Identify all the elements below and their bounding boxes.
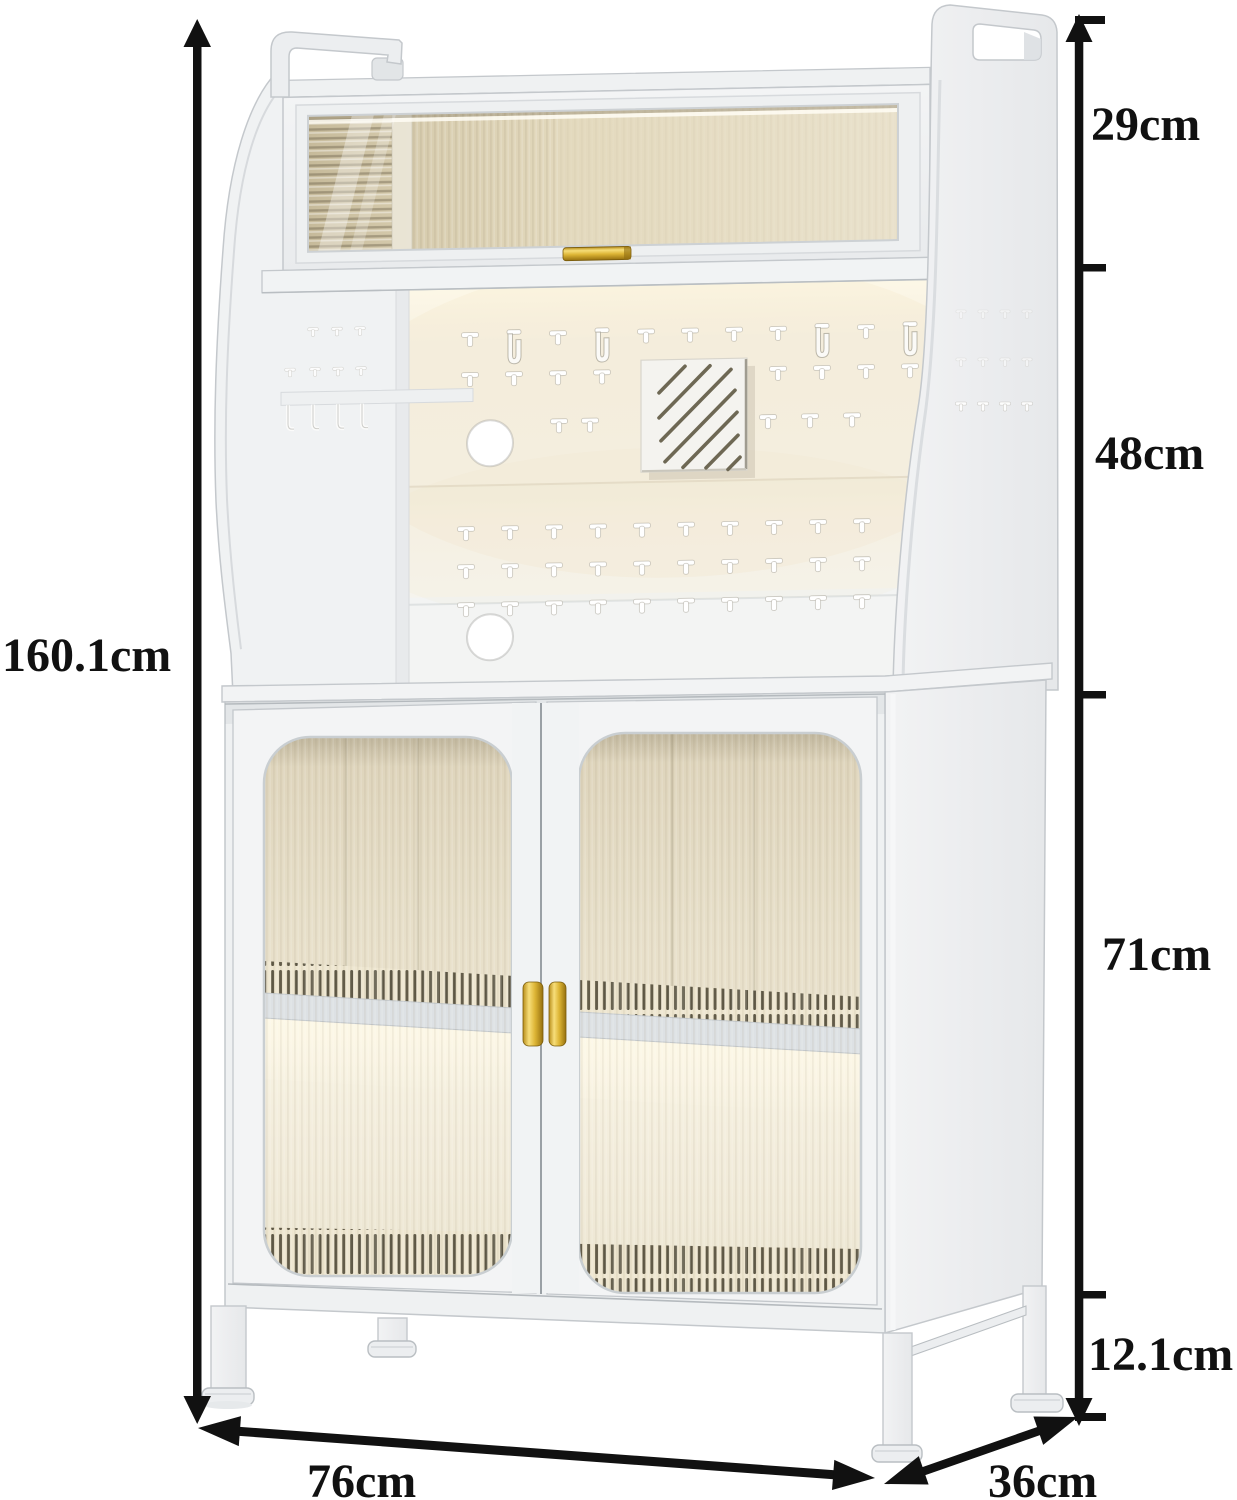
svg-text:71cm: 71cm <box>1102 928 1211 981</box>
svg-text:160.1cm: 160.1cm <box>2 629 171 682</box>
svg-text:29cm: 29cm <box>1091 98 1200 151</box>
svg-text:48cm: 48cm <box>1095 427 1204 480</box>
svg-text:76cm: 76cm <box>307 1455 416 1500</box>
svg-text:36cm: 36cm <box>988 1455 1097 1500</box>
svg-text:12.1cm: 12.1cm <box>1088 1328 1233 1381</box>
